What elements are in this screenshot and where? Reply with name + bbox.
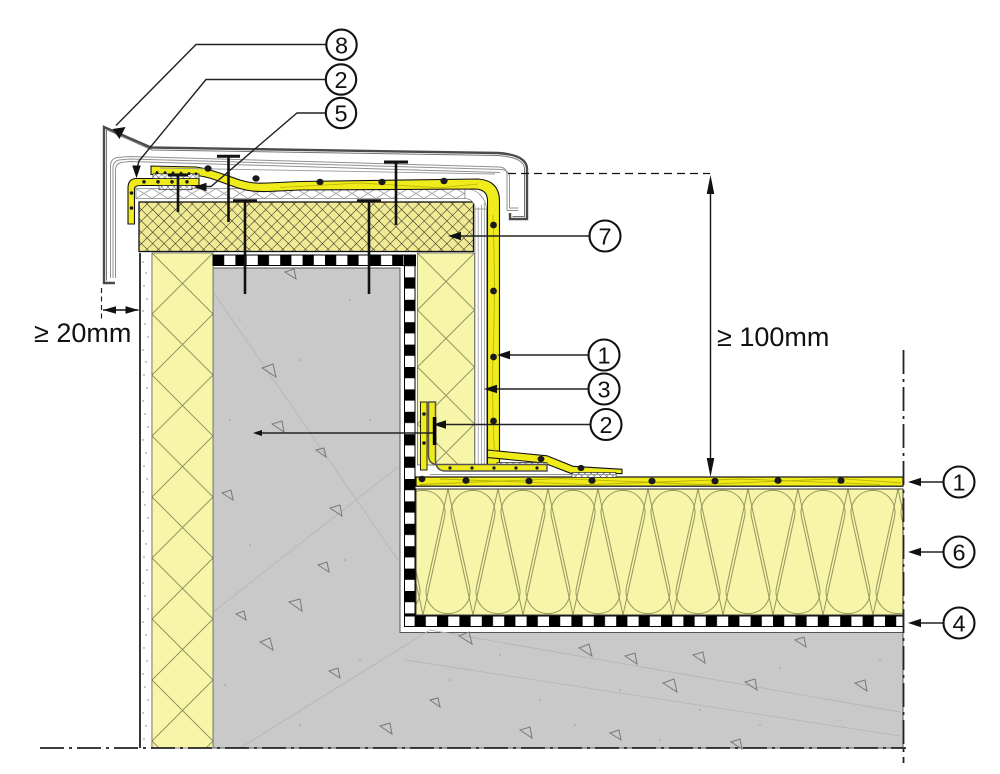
svg-text:5: 5 (334, 101, 347, 127)
svg-text:≥ 20mm: ≥ 20mm (34, 318, 131, 348)
svg-text:4: 4 (952, 611, 965, 637)
svg-text:2: 2 (599, 412, 612, 438)
svg-text:7: 7 (598, 224, 611, 250)
svg-text:1: 1 (597, 343, 610, 369)
svg-text:8: 8 (335, 32, 348, 58)
svg-text:1: 1 (952, 470, 965, 496)
svg-text:≥ 100mm: ≥ 100mm (717, 322, 829, 352)
svg-text:6: 6 (952, 540, 965, 566)
svg-text:2: 2 (334, 67, 347, 93)
svg-text:3: 3 (597, 377, 610, 403)
